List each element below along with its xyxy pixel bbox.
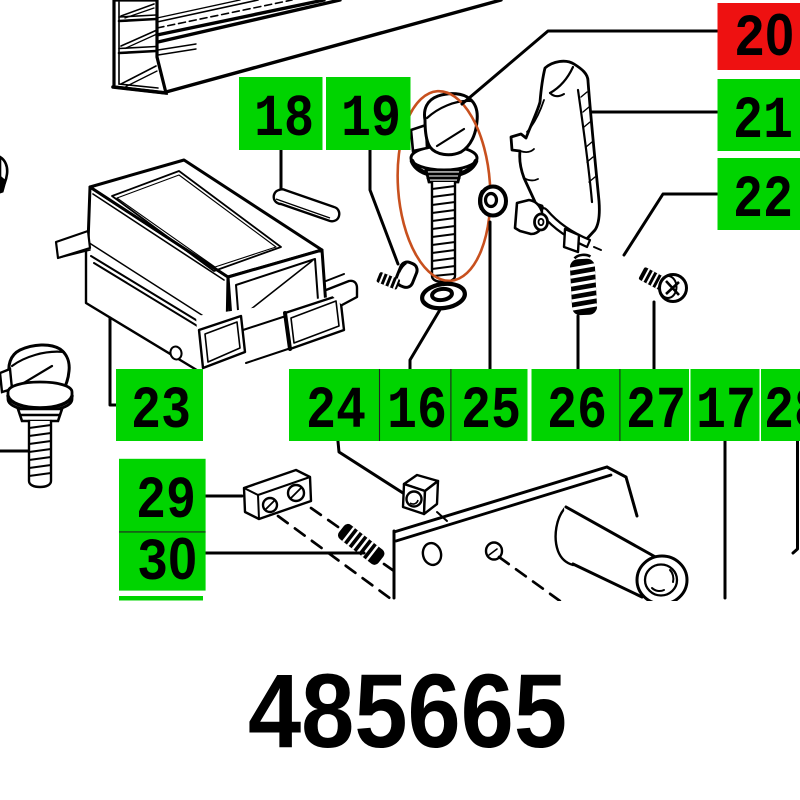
- svg-text:23: 23: [131, 378, 191, 445]
- svg-text:485665: 485665: [248, 653, 567, 770]
- svg-text:25: 25: [461, 378, 521, 445]
- svg-text:17: 17: [696, 378, 756, 445]
- svg-text:22: 22: [733, 167, 793, 234]
- svg-text:29: 29: [136, 468, 196, 535]
- svg-text:18: 18: [254, 86, 314, 153]
- svg-text:19: 19: [341, 86, 401, 153]
- svg-text:26: 26: [547, 378, 607, 445]
- svg-text:27: 27: [626, 378, 686, 445]
- svg-text:21: 21: [733, 88, 793, 155]
- svg-text:16: 16: [387, 378, 447, 445]
- svg-text:30: 30: [137, 526, 197, 597]
- svg-text:28: 28: [764, 378, 800, 445]
- svg-text:24: 24: [306, 378, 366, 445]
- svg-text:20: 20: [734, 2, 794, 73]
